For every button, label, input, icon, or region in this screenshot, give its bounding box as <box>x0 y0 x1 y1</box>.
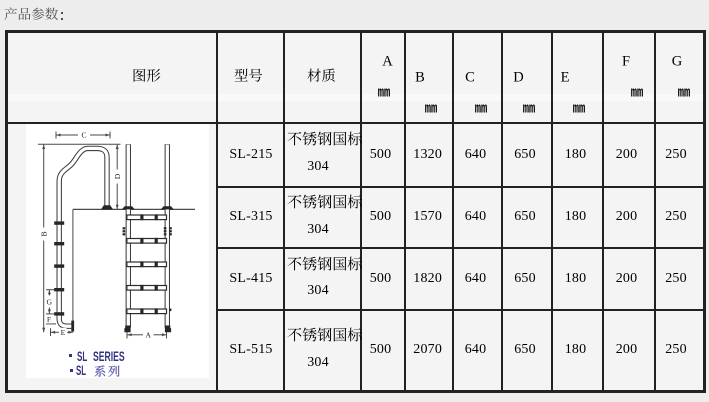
svg-text:B: B <box>40 231 49 236</box>
svg-text:A: A <box>146 331 152 340</box>
svg-text:F: F <box>47 315 51 324</box>
svg-text:G: G <box>47 298 53 307</box>
svg-text:C: C <box>81 131 86 140</box>
svg-text:D: D <box>113 173 122 179</box>
svg-text:E: E <box>61 328 66 337</box>
